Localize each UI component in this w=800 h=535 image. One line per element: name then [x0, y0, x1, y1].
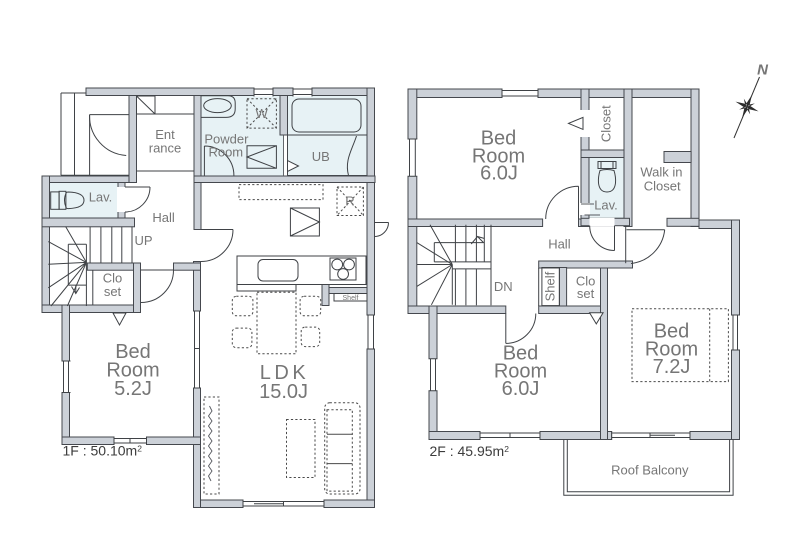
- svg-text:Shelf: Shelf: [343, 295, 359, 302]
- svg-text:set: set: [104, 284, 122, 299]
- svg-text:Lav.: Lav.: [89, 190, 113, 205]
- svg-text:Hall: Hall: [548, 237, 571, 252]
- svg-text:Shelf: Shelf: [543, 271, 558, 301]
- svg-text:set: set: [577, 286, 595, 301]
- svg-text:Walk in: Walk in: [640, 164, 682, 179]
- svg-text:Lav.: Lav.: [594, 198, 618, 213]
- svg-text:R: R: [345, 194, 354, 209]
- svg-text:N: N: [757, 62, 769, 79]
- svg-text:DN: DN: [494, 279, 513, 294]
- svg-text:Closet: Closet: [599, 105, 614, 142]
- svg-text:Closet: Closet: [644, 179, 681, 194]
- svg-text:2F : 45.95m2: 2F : 45.95m2: [430, 443, 510, 459]
- svg-text:6.0J: 6.0J: [502, 378, 540, 400]
- svg-text:5.2J: 5.2J: [114, 378, 152, 400]
- svg-text:Room: Room: [208, 144, 243, 159]
- svg-text:W: W: [256, 106, 269, 121]
- svg-text:1F : 50.10m2: 1F : 50.10m2: [63, 443, 143, 459]
- svg-text:UP: UP: [134, 233, 152, 248]
- svg-text:15.0J: 15.0J: [259, 381, 308, 403]
- svg-text:Hall: Hall: [152, 210, 175, 225]
- svg-text:7.2J: 7.2J: [653, 356, 691, 378]
- svg-text:rance: rance: [149, 140, 182, 155]
- svg-text:6.0J: 6.0J: [480, 163, 518, 185]
- svg-text:Roof Balcony: Roof Balcony: [611, 462, 689, 477]
- svg-text:UB: UB: [312, 149, 330, 164]
